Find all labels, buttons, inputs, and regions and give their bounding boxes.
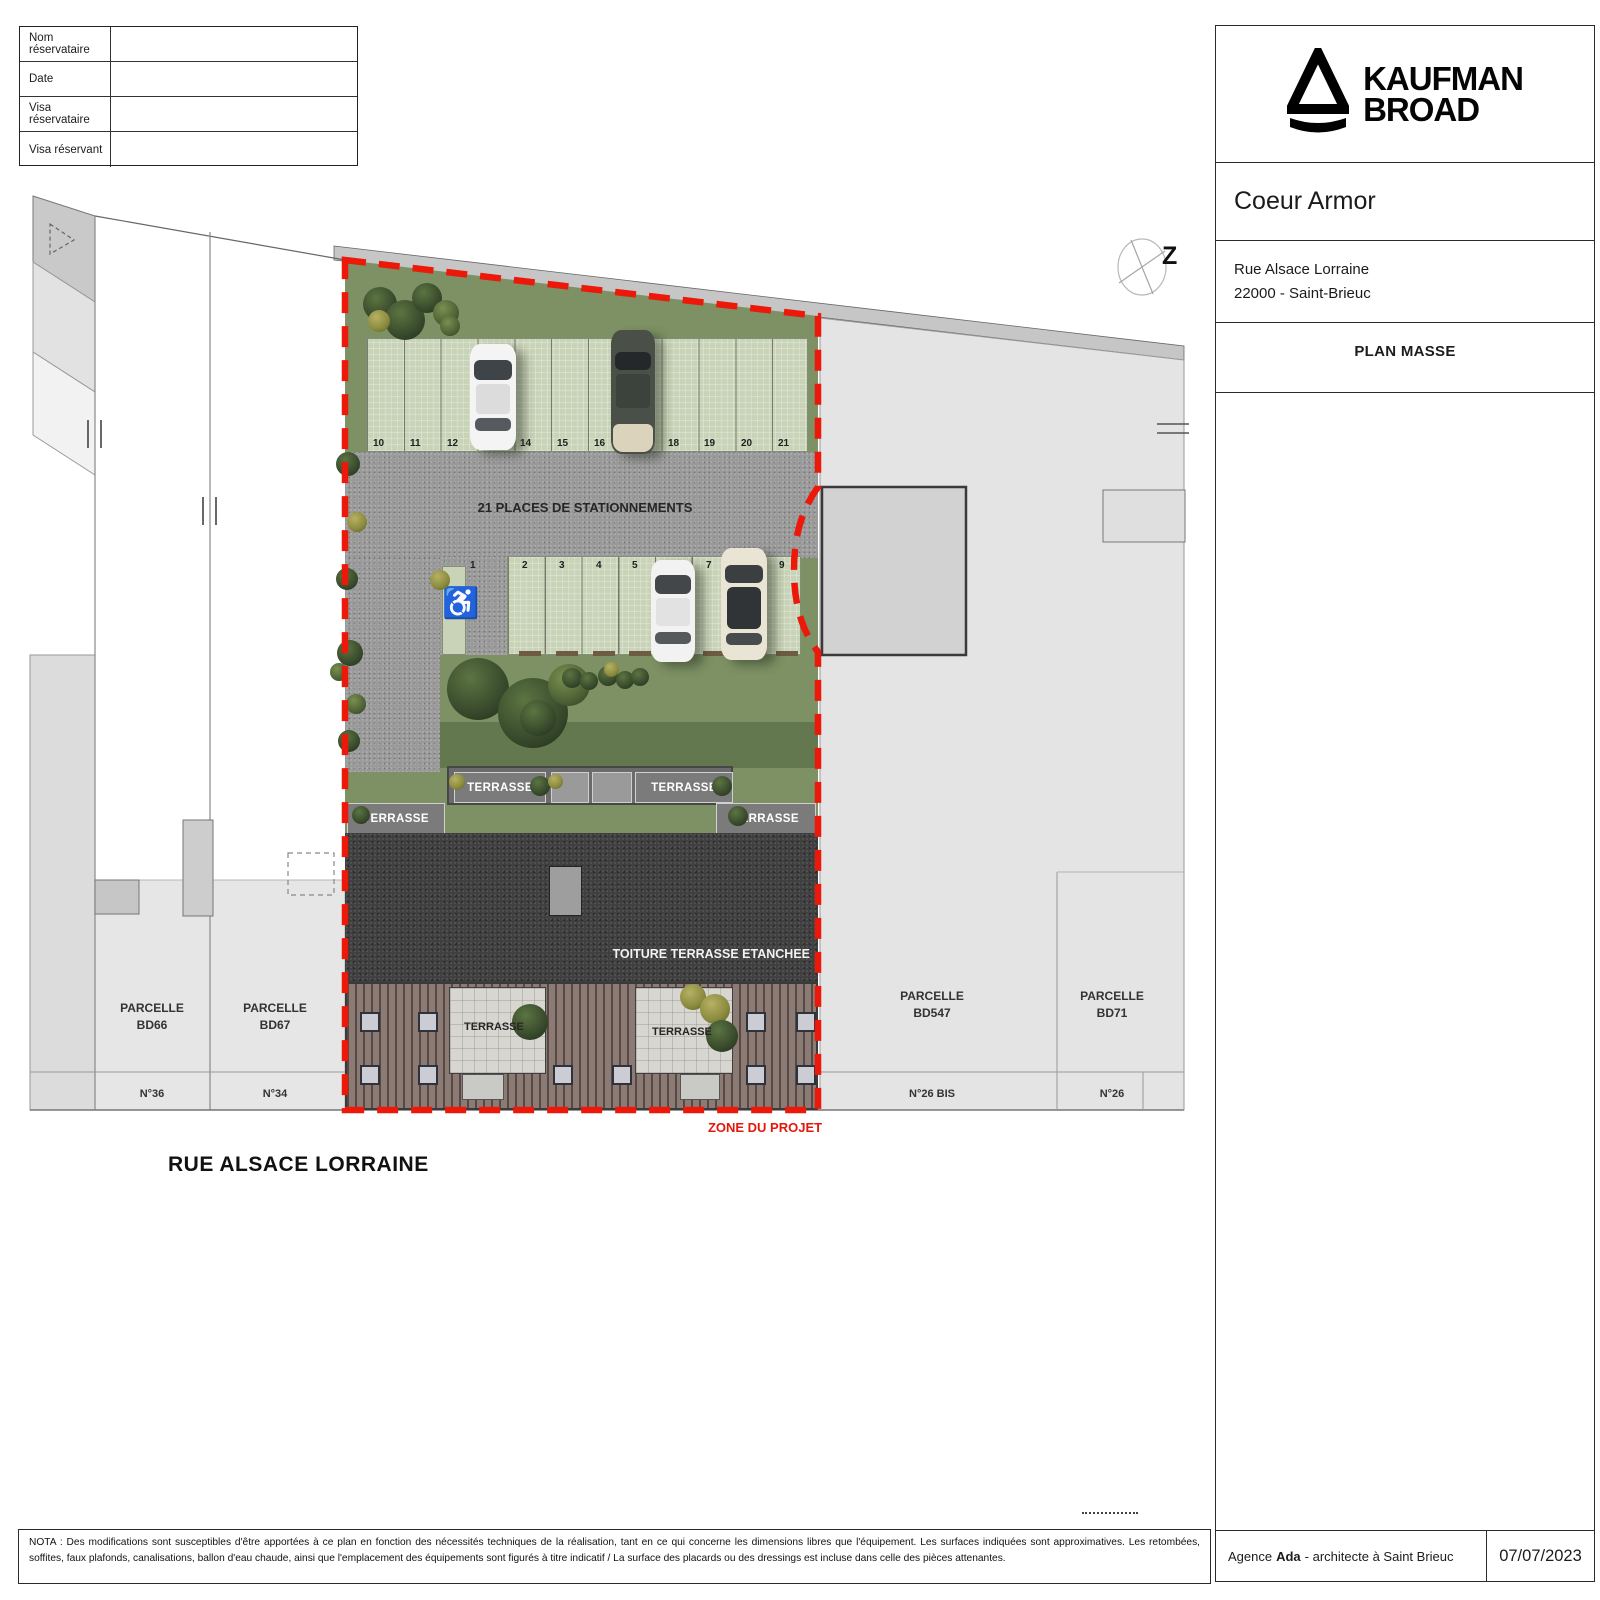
- reservation-table: Nom réservataire Date Visa réservataire …: [19, 26, 358, 166]
- date-field: 07/07/2023: [1486, 1531, 1594, 1581]
- project-name: Coeur Armor: [1216, 163, 1594, 241]
- stall-number: 11: [410, 438, 421, 449]
- agency-name: Ada: [1276, 1549, 1301, 1564]
- stall-number: 19: [704, 438, 715, 449]
- stall-number: 20: [741, 438, 752, 449]
- skylight: [612, 1065, 632, 1085]
- skylight: [360, 1012, 380, 1032]
- parcel-id: BD67: [215, 1017, 335, 1034]
- bush-icon: [530, 776, 550, 796]
- title-block: KAUFMAN BROAD Coeur Armor Rue Alsace Lor…: [1215, 25, 1595, 1582]
- bush-icon: [449, 774, 465, 790]
- table-row: Visa réservant: [20, 132, 357, 167]
- stall-number: 12: [447, 438, 458, 449]
- wheel-stop: [556, 651, 578, 656]
- handicap-icon: ♿: [442, 586, 479, 621]
- parcel-id: BD547: [862, 1005, 1002, 1022]
- parcel-word: PARCELLE: [862, 988, 1002, 1005]
- brand-name-top: KAUFMAN: [1363, 63, 1523, 94]
- skylight: [746, 1065, 766, 1085]
- brand-name: KAUFMAN BROAD: [1363, 63, 1523, 126]
- parcel-label: PARCELLE BD547: [862, 988, 1002, 1022]
- neighbour-building: [822, 487, 966, 655]
- bush-icon: [562, 668, 582, 688]
- car-icon: [721, 548, 767, 660]
- bush-icon: [712, 776, 732, 796]
- parcel-word: PARCELLE: [215, 1000, 335, 1017]
- street-number-label: N°26: [1042, 1086, 1182, 1103]
- bush-icon: [337, 640, 363, 666]
- skylight: [418, 1065, 438, 1085]
- bush-icon: [336, 452, 360, 476]
- bush-icon: [631, 668, 649, 686]
- stall-number: 15: [557, 438, 568, 449]
- title-block-blank: [1216, 393, 1594, 1530]
- north-arrow-icon: [1118, 239, 1166, 295]
- roof-label: TOITURE TERRASSE ETANCHEE: [555, 947, 810, 961]
- bush-icon: [330, 663, 348, 681]
- terrasse-label: TERRASSE: [652, 1026, 712, 1038]
- street-label: RUE ALSACE LORRAINE: [168, 1153, 429, 1177]
- skylight: [796, 1012, 816, 1032]
- stall-number: 1: [470, 560, 476, 571]
- address-line: Rue Alsace Lorraine: [1234, 258, 1594, 281]
- bush-icon: [352, 806, 370, 824]
- row-value-cell: [111, 62, 357, 96]
- car-icon: [651, 560, 695, 662]
- agency-suffix: - architecte à Saint Brieuc: [1305, 1549, 1454, 1564]
- street-number-label: N°34: [215, 1086, 335, 1103]
- skylight: [360, 1065, 380, 1085]
- wheel-stop: [629, 651, 651, 656]
- stall-number: 2: [522, 560, 528, 571]
- wheel-stop: [776, 651, 798, 656]
- lower-building-roof: [345, 982, 818, 1110]
- terrace-deck: TERRASSE TERRASSE: [447, 766, 733, 805]
- table-row: Date: [20, 62, 357, 97]
- stall-number: 14: [520, 438, 531, 449]
- bush-icon: [336, 568, 358, 590]
- car-icon: [611, 330, 655, 454]
- parcel-label: PARCELLE BD66: [92, 1000, 212, 1034]
- skylight: [418, 1012, 438, 1032]
- wheel-stop: [593, 651, 615, 656]
- bush-icon: [580, 672, 598, 690]
- skylight: [796, 1065, 816, 1085]
- north-letter: Z: [1162, 242, 1177, 271]
- parcel-word: PARCELLE: [1042, 988, 1182, 1005]
- parcel-label: PARCELLE BD67: [215, 1000, 335, 1034]
- parcel-label: PARCELLE BD71: [1042, 988, 1182, 1022]
- wheel-stop: [519, 651, 541, 656]
- table-row: Visa réservataire: [20, 97, 357, 132]
- parking-count-label: 21 PLACES DE STATIONNEMENTS: [455, 500, 715, 515]
- bush-icon: [347, 512, 367, 532]
- stall-number: 5: [632, 560, 638, 571]
- stall-number: 21: [778, 438, 789, 449]
- brand-logo-icon: [1287, 48, 1349, 140]
- stall-number: 7: [706, 560, 712, 571]
- roof-access: [549, 866, 582, 916]
- table-row: Nom réservataire: [20, 27, 357, 62]
- row-value-cell: [111, 97, 357, 131]
- drawing-title: PLAN MASSE: [1216, 323, 1594, 393]
- row-label: Visa réservataire: [20, 97, 111, 131]
- bush-icon: [346, 694, 366, 714]
- bush-icon: [728, 806, 748, 826]
- brand-name-bottom: BROAD: [1363, 94, 1523, 125]
- stall-number: 16: [594, 438, 605, 449]
- bush-icon: [520, 700, 556, 736]
- bush-icon: [338, 730, 360, 752]
- deck-panel: [592, 772, 632, 803]
- bush-icon: [368, 310, 390, 332]
- stall-number: 10: [373, 438, 384, 449]
- stall-number: 4: [596, 560, 602, 571]
- brand-logo: KAUFMAN BROAD: [1216, 26, 1594, 163]
- plan-sheet: 10 11 12 13 14 15 16 17 18 19 20 21 2 3 …: [0, 0, 1600, 1600]
- awning: [462, 1074, 504, 1100]
- awning: [680, 1074, 720, 1100]
- parking-row-top: 10 11 12 13 14 15 16 17 18 19 20 21: [366, 338, 808, 452]
- project-address: Rue Alsace Lorraine 22000 - Saint-Brieuc: [1216, 241, 1594, 323]
- skylight: [553, 1065, 573, 1085]
- row-label: Visa réservant: [20, 132, 111, 167]
- stall-number: 9: [779, 560, 785, 571]
- parcel-word: PARCELLE: [92, 1000, 212, 1017]
- row-value-cell: [111, 27, 357, 61]
- car-icon: [470, 344, 516, 450]
- parcel-id: BD66: [92, 1017, 212, 1034]
- terrasse-label: TERRASSE: [464, 1021, 524, 1033]
- street-number-label: N°26 BIS: [862, 1086, 1002, 1103]
- bush-icon: [430, 570, 450, 590]
- nota-box: NOTA : Des modifications sont susceptibl…: [18, 1529, 1211, 1584]
- dotted-mark: [1082, 1512, 1138, 1514]
- skylight: [746, 1012, 766, 1032]
- row-label: Nom réservataire: [20, 27, 111, 61]
- title-block-footer: Agence Ada - architecte à Saint Brieuc 0…: [1216, 1530, 1594, 1581]
- bush-icon: [440, 316, 460, 336]
- stall-number: 18: [668, 438, 679, 449]
- architect-credit: Agence Ada - architecte à Saint Brieuc: [1216, 1531, 1486, 1581]
- row-value-cell: [111, 132, 357, 167]
- agency-prefix: Agence: [1228, 1549, 1272, 1564]
- row-label: Date: [20, 62, 111, 96]
- stall-number: 3: [559, 560, 565, 571]
- address-line: 22000 - Saint-Brieuc: [1234, 282, 1594, 305]
- parcel-id: BD71: [1042, 1005, 1182, 1022]
- street-number-label: N°36: [92, 1086, 212, 1103]
- zone-label: ZONE DU PROJET: [700, 1120, 830, 1135]
- bush-icon: [548, 774, 563, 789]
